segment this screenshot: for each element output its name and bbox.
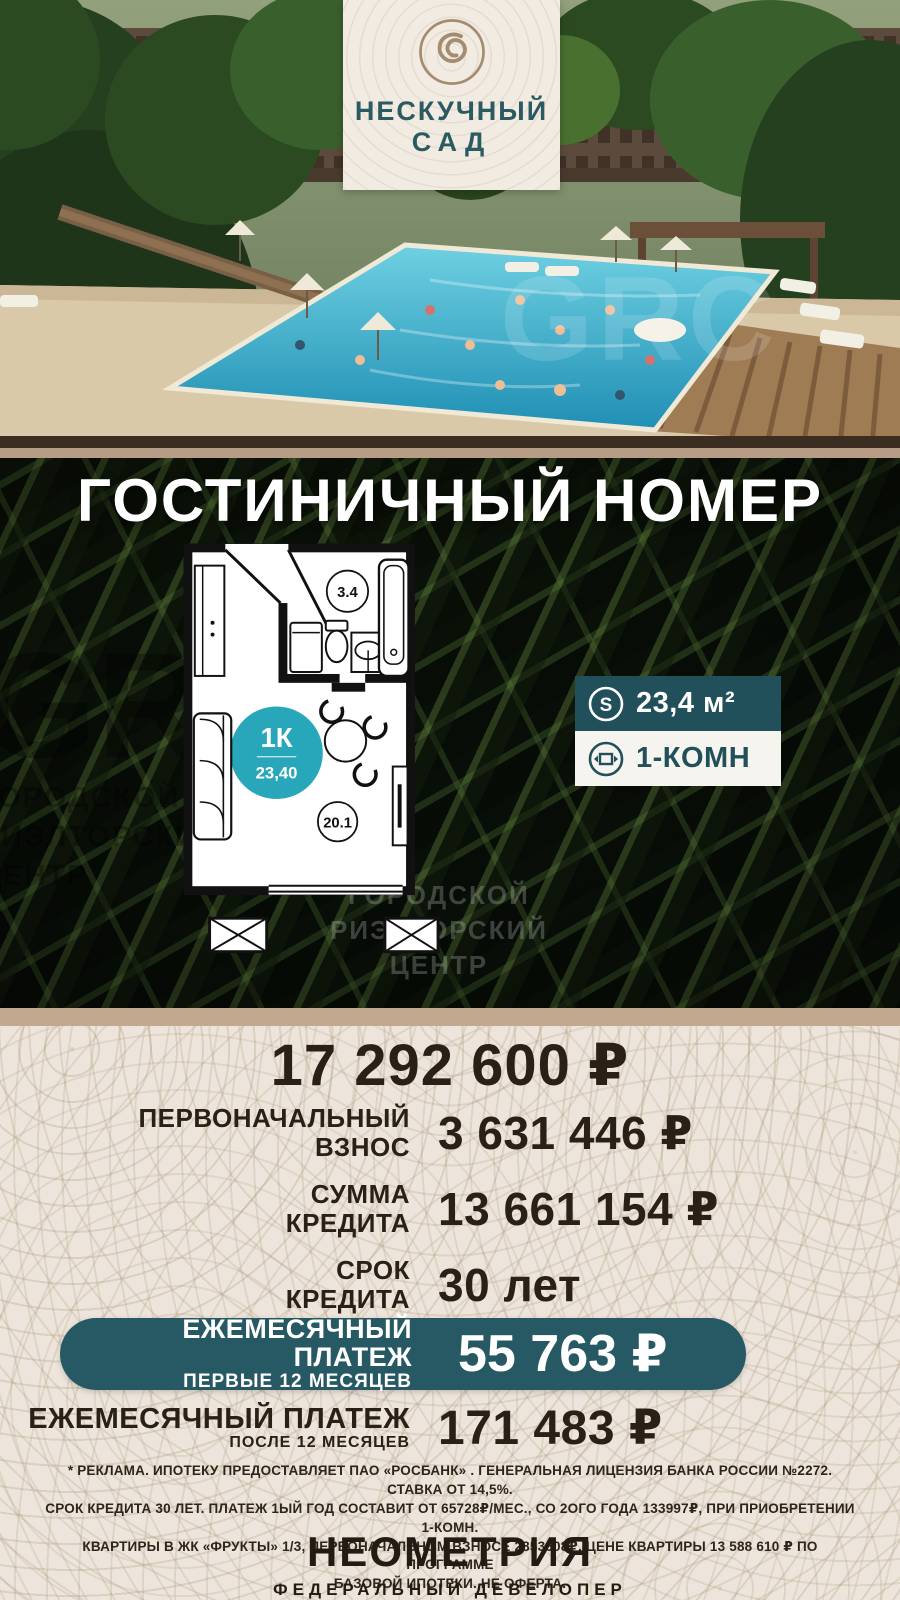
- down-payment-value: 3 631 446 ₽: [438, 1106, 693, 1160]
- grc-watermark-photo: GRC: [500, 250, 779, 388]
- floorplan-drawing: 3.4 1К 23,40 20.1: [182, 542, 442, 956]
- total-price: 17 292 600 ₽: [0, 1026, 900, 1106]
- area-badge: S 23,4 м²: [575, 676, 781, 731]
- hero-pool-photo: GRC НЕСКУЧНЫЙ САД: [0, 0, 900, 448]
- vent-box-right: [385, 918, 438, 951]
- area-icon: S: [587, 685, 625, 723]
- developer-footer: НЕОМЕТРИЯ ФЕДЕРАЛЬНЫЙ ДЕВЕЛОПЕР: [0, 1528, 900, 1600]
- floorplan: 3.4 1К 23,40 20.1: [182, 542, 442, 956]
- pricing-section: ГОРОДСКОЙ РИЭЛТОРСКИЙ ЦЕНТР GRC 17 292 6…: [0, 1026, 900, 1600]
- monthly-after-label: ЕЖЕМЕСЯЧНЫЙ ПЛАТЕЖ ПОСЛЕ 12 МЕСЯЦЕВ: [0, 1405, 410, 1452]
- monthly-first-label: ЕЖЕМЕСЯЧНЫЙ ПЛАТЕЖ ПЕРВЫЕ 12 МЕСЯЦЕВ: [60, 1315, 412, 1394]
- brand-name-line1: НЕСКУЧНЫЙ: [355, 96, 548, 127]
- rooms-badge: 1-КОМН: [575, 731, 781, 786]
- monthly-payment-after-row: ЕЖЕМЕСЯЧНЫЙ ПЛАТЕЖ ПОСЛЕ 12 МЕСЯЦЕВ 171 …: [0, 1398, 900, 1458]
- loan-amount-value: 13 661 154 ₽: [438, 1182, 719, 1236]
- rooms-badge-value: 1-КОМН: [636, 742, 750, 775]
- logo-card: НЕСКУЧНЫЙ САД: [343, 0, 560, 190]
- developer-name: НЕОМЕТРИЯ: [0, 1528, 900, 1576]
- down-payment-row: ПЕРВОНАЧАЛЬНЫЙ ВЗНОС 3 631 446 ₽: [0, 1100, 900, 1166]
- down-payment-label: ПЕРВОНАЧАЛЬНЫЙ ВЗНОС: [0, 1104, 410, 1161]
- loan-term-value: 30 лет: [438, 1258, 581, 1312]
- monthly-first-value: 55 763 ₽: [458, 1324, 668, 1384]
- monthly-payment-first-banner: ЕЖЕМЕСЯЧНЫЙ ПЛАТЕЖ ПЕРВЫЕ 12 МЕСЯЦЕВ 55 …: [60, 1318, 746, 1390]
- real-estate-poster: GRC НЕСКУЧНЫЙ САД GRC ГОРОДСКОЙ РИЭЛТОРС…: [0, 0, 900, 1600]
- unit-area-label: 23,40: [256, 763, 298, 782]
- vent-box-left: [210, 918, 267, 951]
- area-badge-value: 23,4 м²: [636, 687, 735, 720]
- developer-tagline: ФЕДЕРАЛЬНЫЙ ДЕВЕЛОПЕР: [0, 1580, 900, 1600]
- monthly-after-value: 171 483 ₽: [438, 1400, 663, 1456]
- loan-amount-label: СУММА КРЕДИТА: [0, 1180, 410, 1237]
- room-dimensions-icon: [587, 740, 625, 778]
- loan-amount-row: СУММА КРЕДИТА 13 661 154 ₽: [0, 1176, 900, 1242]
- unit-type-label: 1К: [260, 722, 292, 753]
- unit-badges: S 23,4 м² 1-КОМН: [575, 676, 781, 786]
- living-area-label: 20.1: [323, 816, 352, 832]
- section-title: ГОСТИНИЧНЫЙ НОМЕР: [0, 466, 900, 535]
- loan-term-row: СРОК КРЕДИТА 30 лет: [0, 1252, 900, 1318]
- svg-text:S: S: [600, 695, 613, 716]
- divider-strip-top: [0, 448, 900, 458]
- divider-strip-bottom: [0, 1008, 900, 1026]
- brand-knot-icon: [416, 16, 488, 88]
- bathroom-area-label: 3.4: [337, 585, 358, 601]
- loan-term-label: СРОК КРЕДИТА: [0, 1256, 410, 1313]
- brand-name-line2: САД: [412, 127, 492, 158]
- palm-section: GRC ГОРОДСКОЙ РИЭЛТОРСКИЙ ЦЕНТР ГОРОДСКО…: [0, 458, 900, 1008]
